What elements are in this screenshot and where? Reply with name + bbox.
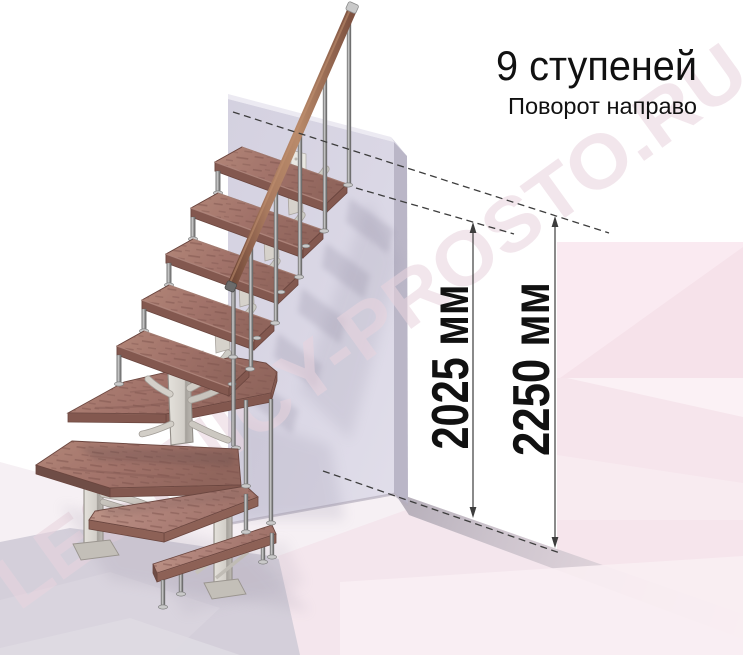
- svg-text:9 ступеней: 9 ступеней: [496, 42, 697, 89]
- svg-text:Поворот направо: Поворот направо: [508, 93, 697, 119]
- svg-text:2250 мм: 2250 мм: [503, 282, 561, 456]
- svg-text:2025 мм: 2025 мм: [422, 285, 480, 450]
